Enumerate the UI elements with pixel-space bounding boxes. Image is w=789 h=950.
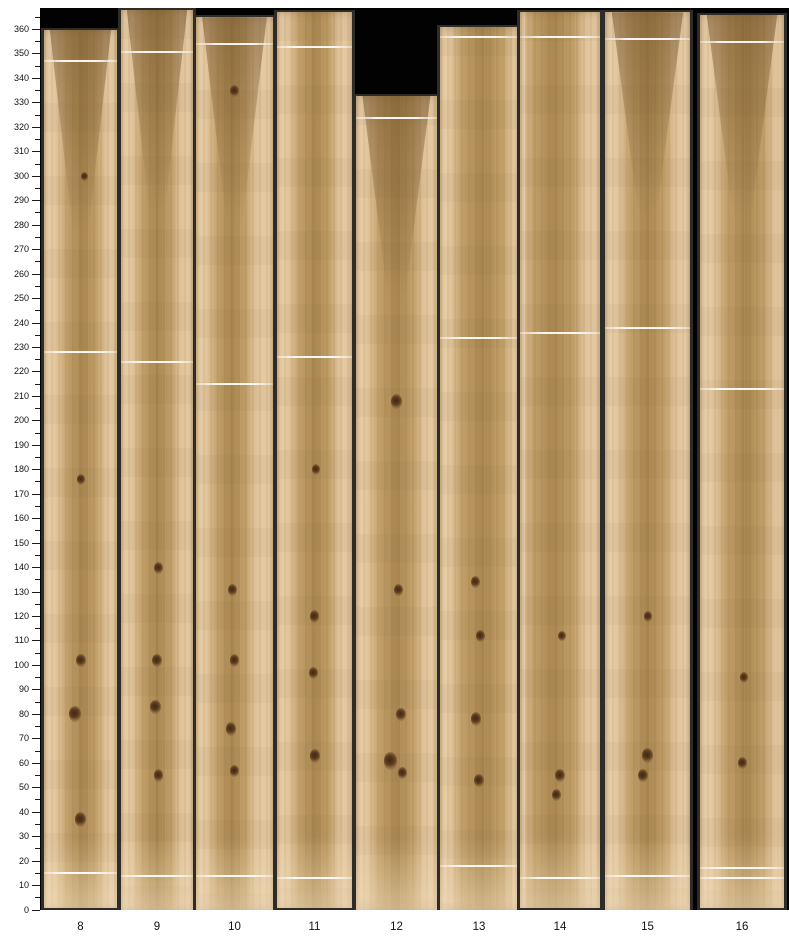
board-wood-8: [44, 30, 117, 908]
knot-mark: [642, 748, 653, 763]
splice-line: [277, 877, 352, 879]
knot-mark: [552, 789, 561, 801]
board-wood-13: [440, 27, 518, 910]
y-tick-label: 290: [0, 195, 29, 206]
y-major-tick: [32, 640, 40, 641]
y-tick-label: 190: [0, 440, 29, 451]
y-major-tick: [32, 836, 40, 837]
y-major-tick: [32, 518, 40, 519]
y-tick-label: 180: [0, 464, 29, 475]
board-scan-12: [353, 94, 440, 910]
y-tick-label: 170: [0, 489, 29, 500]
y-major-tick: [32, 787, 40, 788]
splice-line: [356, 117, 437, 119]
lumber-board-scan-figure: 0102030405060708090100110120130140150160…: [0, 0, 789, 950]
y-major-tick: [32, 127, 40, 128]
y-tick-label: 210: [0, 391, 29, 402]
y-major-tick: [32, 616, 40, 617]
splice-line: [196, 43, 273, 45]
knot-mark: [474, 774, 484, 788]
knot-mark: [555, 769, 565, 783]
y-tick-label: 340: [0, 73, 29, 84]
splice-line: [520, 36, 600, 38]
splice-line: [44, 351, 117, 353]
knot-mark: [230, 85, 239, 97]
board-label-16: 16: [725, 921, 759, 933]
y-major-tick: [32, 347, 40, 348]
y-major-tick: [32, 445, 40, 446]
y-major-tick: [32, 396, 40, 397]
board-bottom-fade: [356, 838, 437, 910]
board-scan-9: [118, 8, 196, 910]
heartwood-top-flare: [612, 12, 683, 217]
knot-mark: [310, 610, 319, 622]
y-major-tick: [32, 861, 40, 862]
y-major-tick: [32, 910, 40, 911]
y-tick-label: 20: [0, 856, 29, 867]
knot-mark: [644, 611, 652, 622]
board-label-15: 15: [631, 921, 665, 933]
knot-mark: [384, 752, 397, 770]
board-scan-8: [41, 28, 120, 911]
y-major-tick: [32, 53, 40, 54]
splice-line: [277, 356, 352, 358]
y-tick-label: 70: [0, 733, 29, 744]
board-scan-16: [697, 13, 787, 910]
plot-area: [40, 8, 789, 910]
splice-line: [440, 865, 518, 867]
y-tick-label: 150: [0, 538, 29, 549]
board-label-12: 12: [380, 921, 414, 933]
knot-mark: [230, 654, 239, 666]
y-major-tick: [32, 151, 40, 152]
y-tick-label: 330: [0, 97, 29, 108]
board-wood-16: [700, 15, 784, 908]
knot-mark: [394, 584, 403, 596]
y-tick-label: 140: [0, 562, 29, 573]
y-major-tick: [32, 738, 40, 739]
y-tick-label: 10: [0, 880, 29, 891]
board-label-13: 13: [462, 921, 496, 933]
y-major-tick: [32, 323, 40, 324]
board-scan-15: [602, 10, 693, 910]
knot-mark: [558, 631, 566, 642]
y-tick-label: 40: [0, 807, 29, 818]
y-tick-label: 200: [0, 415, 29, 426]
y-tick-label: 130: [0, 587, 29, 598]
knot-mark: [740, 672, 748, 683]
splice-line: [44, 872, 117, 874]
y-major-tick: [32, 298, 40, 299]
board-wood-12: [356, 96, 437, 910]
splice-line: [121, 361, 193, 363]
y-major-tick: [32, 29, 40, 30]
knot-mark: [309, 667, 318, 679]
splice-line: [700, 388, 784, 390]
y-tick-label: 320: [0, 122, 29, 133]
splice-line: [700, 877, 784, 879]
splice-line: [121, 51, 193, 53]
y-tick-label: 310: [0, 146, 29, 157]
knot-mark: [310, 749, 320, 763]
y-tick-label: 300: [0, 171, 29, 182]
splice-line: [520, 877, 600, 879]
y-major-tick: [32, 714, 40, 715]
y-major-tick: [32, 763, 40, 764]
knot-mark: [154, 769, 163, 781]
y-major-tick: [32, 885, 40, 886]
knot-mark: [77, 474, 85, 485]
y-tick-label: 120: [0, 611, 29, 622]
y-tick-label: 90: [0, 684, 29, 695]
board-scan-13: [437, 25, 521, 910]
knot-mark: [152, 654, 162, 668]
y-tick-label: 280: [0, 220, 29, 231]
y-major-tick: [32, 689, 40, 690]
splice-line: [605, 875, 690, 877]
y-major-tick: [32, 371, 40, 372]
y-tick-label: 60: [0, 758, 29, 769]
board-label-14: 14: [543, 921, 577, 933]
board-label-9: 9: [140, 921, 174, 933]
knot-mark: [75, 812, 86, 827]
board-label-10: 10: [218, 921, 252, 933]
board-label-11: 11: [298, 921, 332, 933]
board-wood-15: [605, 12, 690, 910]
splice-line: [440, 337, 518, 339]
knot-mark: [471, 576, 480, 588]
splice-line: [605, 327, 690, 329]
heartwood-top-flare: [127, 10, 187, 215]
knot-mark: [391, 394, 402, 409]
y-tick-label: 30: [0, 831, 29, 842]
knot-mark: [471, 712, 481, 726]
y-major-tick: [32, 567, 40, 568]
knot-mark: [398, 767, 407, 779]
y-tick-label: 100: [0, 660, 29, 671]
knot-mark: [228, 584, 237, 596]
y-major-tick: [32, 176, 40, 177]
y-major-tick: [32, 225, 40, 226]
splice-line: [700, 41, 784, 43]
board-wood-10: [196, 17, 273, 910]
heartwood-top-flare: [362, 96, 430, 301]
board-scan-10: [193, 15, 276, 910]
splice-line: [605, 38, 690, 40]
knot-mark: [396, 708, 406, 722]
knot-mark: [312, 464, 320, 475]
y-tick-label: 50: [0, 782, 29, 793]
board-bottom-fade: [700, 836, 784, 908]
splice-line: [196, 875, 273, 877]
y-major-tick: [32, 469, 40, 470]
board-bottom-fade: [440, 838, 518, 910]
knot-mark: [476, 630, 485, 642]
y-tick-label: 230: [0, 342, 29, 353]
y-major-tick: [32, 200, 40, 201]
knot-mark: [150, 700, 161, 715]
board-wood-11: [277, 12, 352, 907]
board-label-8: 8: [64, 921, 98, 933]
y-major-tick: [32, 420, 40, 421]
heartwood-top-flare: [202, 17, 267, 222]
board-scan-14: [517, 10, 603, 910]
y-tick-label: 260: [0, 269, 29, 280]
y-major-tick: [32, 592, 40, 593]
board-scan-11: [274, 10, 355, 910]
board-bottom-fade: [277, 836, 352, 908]
splice-line: [196, 383, 273, 385]
splice-line: [440, 36, 518, 38]
y-major-tick: [32, 543, 40, 544]
y-major-tick: [32, 274, 40, 275]
board-bottom-fade: [520, 836, 600, 908]
y-major-tick: [32, 78, 40, 79]
y-tick-label: 0: [0, 905, 29, 916]
y-tick-label: 350: [0, 48, 29, 59]
splice-line: [520, 332, 600, 334]
knot-mark: [738, 757, 747, 769]
splice-line: [121, 875, 193, 877]
y-tick-label: 360: [0, 24, 29, 35]
knot-mark: [154, 562, 163, 574]
y-major-tick: [32, 102, 40, 103]
y-tick-label: 80: [0, 709, 29, 720]
y-tick-label: 220: [0, 366, 29, 377]
y-tick-label: 270: [0, 244, 29, 255]
splice-line: [700, 867, 784, 869]
y-major-tick: [32, 249, 40, 250]
knot-mark: [69, 706, 81, 722]
splice-line: [277, 46, 352, 48]
knot-mark: [76, 654, 86, 668]
heartwood-top-flare: [707, 15, 778, 220]
y-tick-label: 160: [0, 513, 29, 524]
board-wood-9: [121, 10, 193, 910]
y-tick-label: 250: [0, 293, 29, 304]
knot-mark: [81, 172, 88, 181]
y-tick-label: 110: [0, 635, 29, 646]
y-major-tick: [32, 812, 40, 813]
knot-mark: [230, 765, 239, 777]
y-tick-label: 240: [0, 318, 29, 329]
knot-mark: [638, 769, 648, 783]
board-wood-14: [520, 12, 600, 907]
splice-line: [44, 60, 117, 62]
y-major-tick: [32, 494, 40, 495]
y-major-tick: [32, 665, 40, 666]
knot-mark: [226, 722, 236, 736]
